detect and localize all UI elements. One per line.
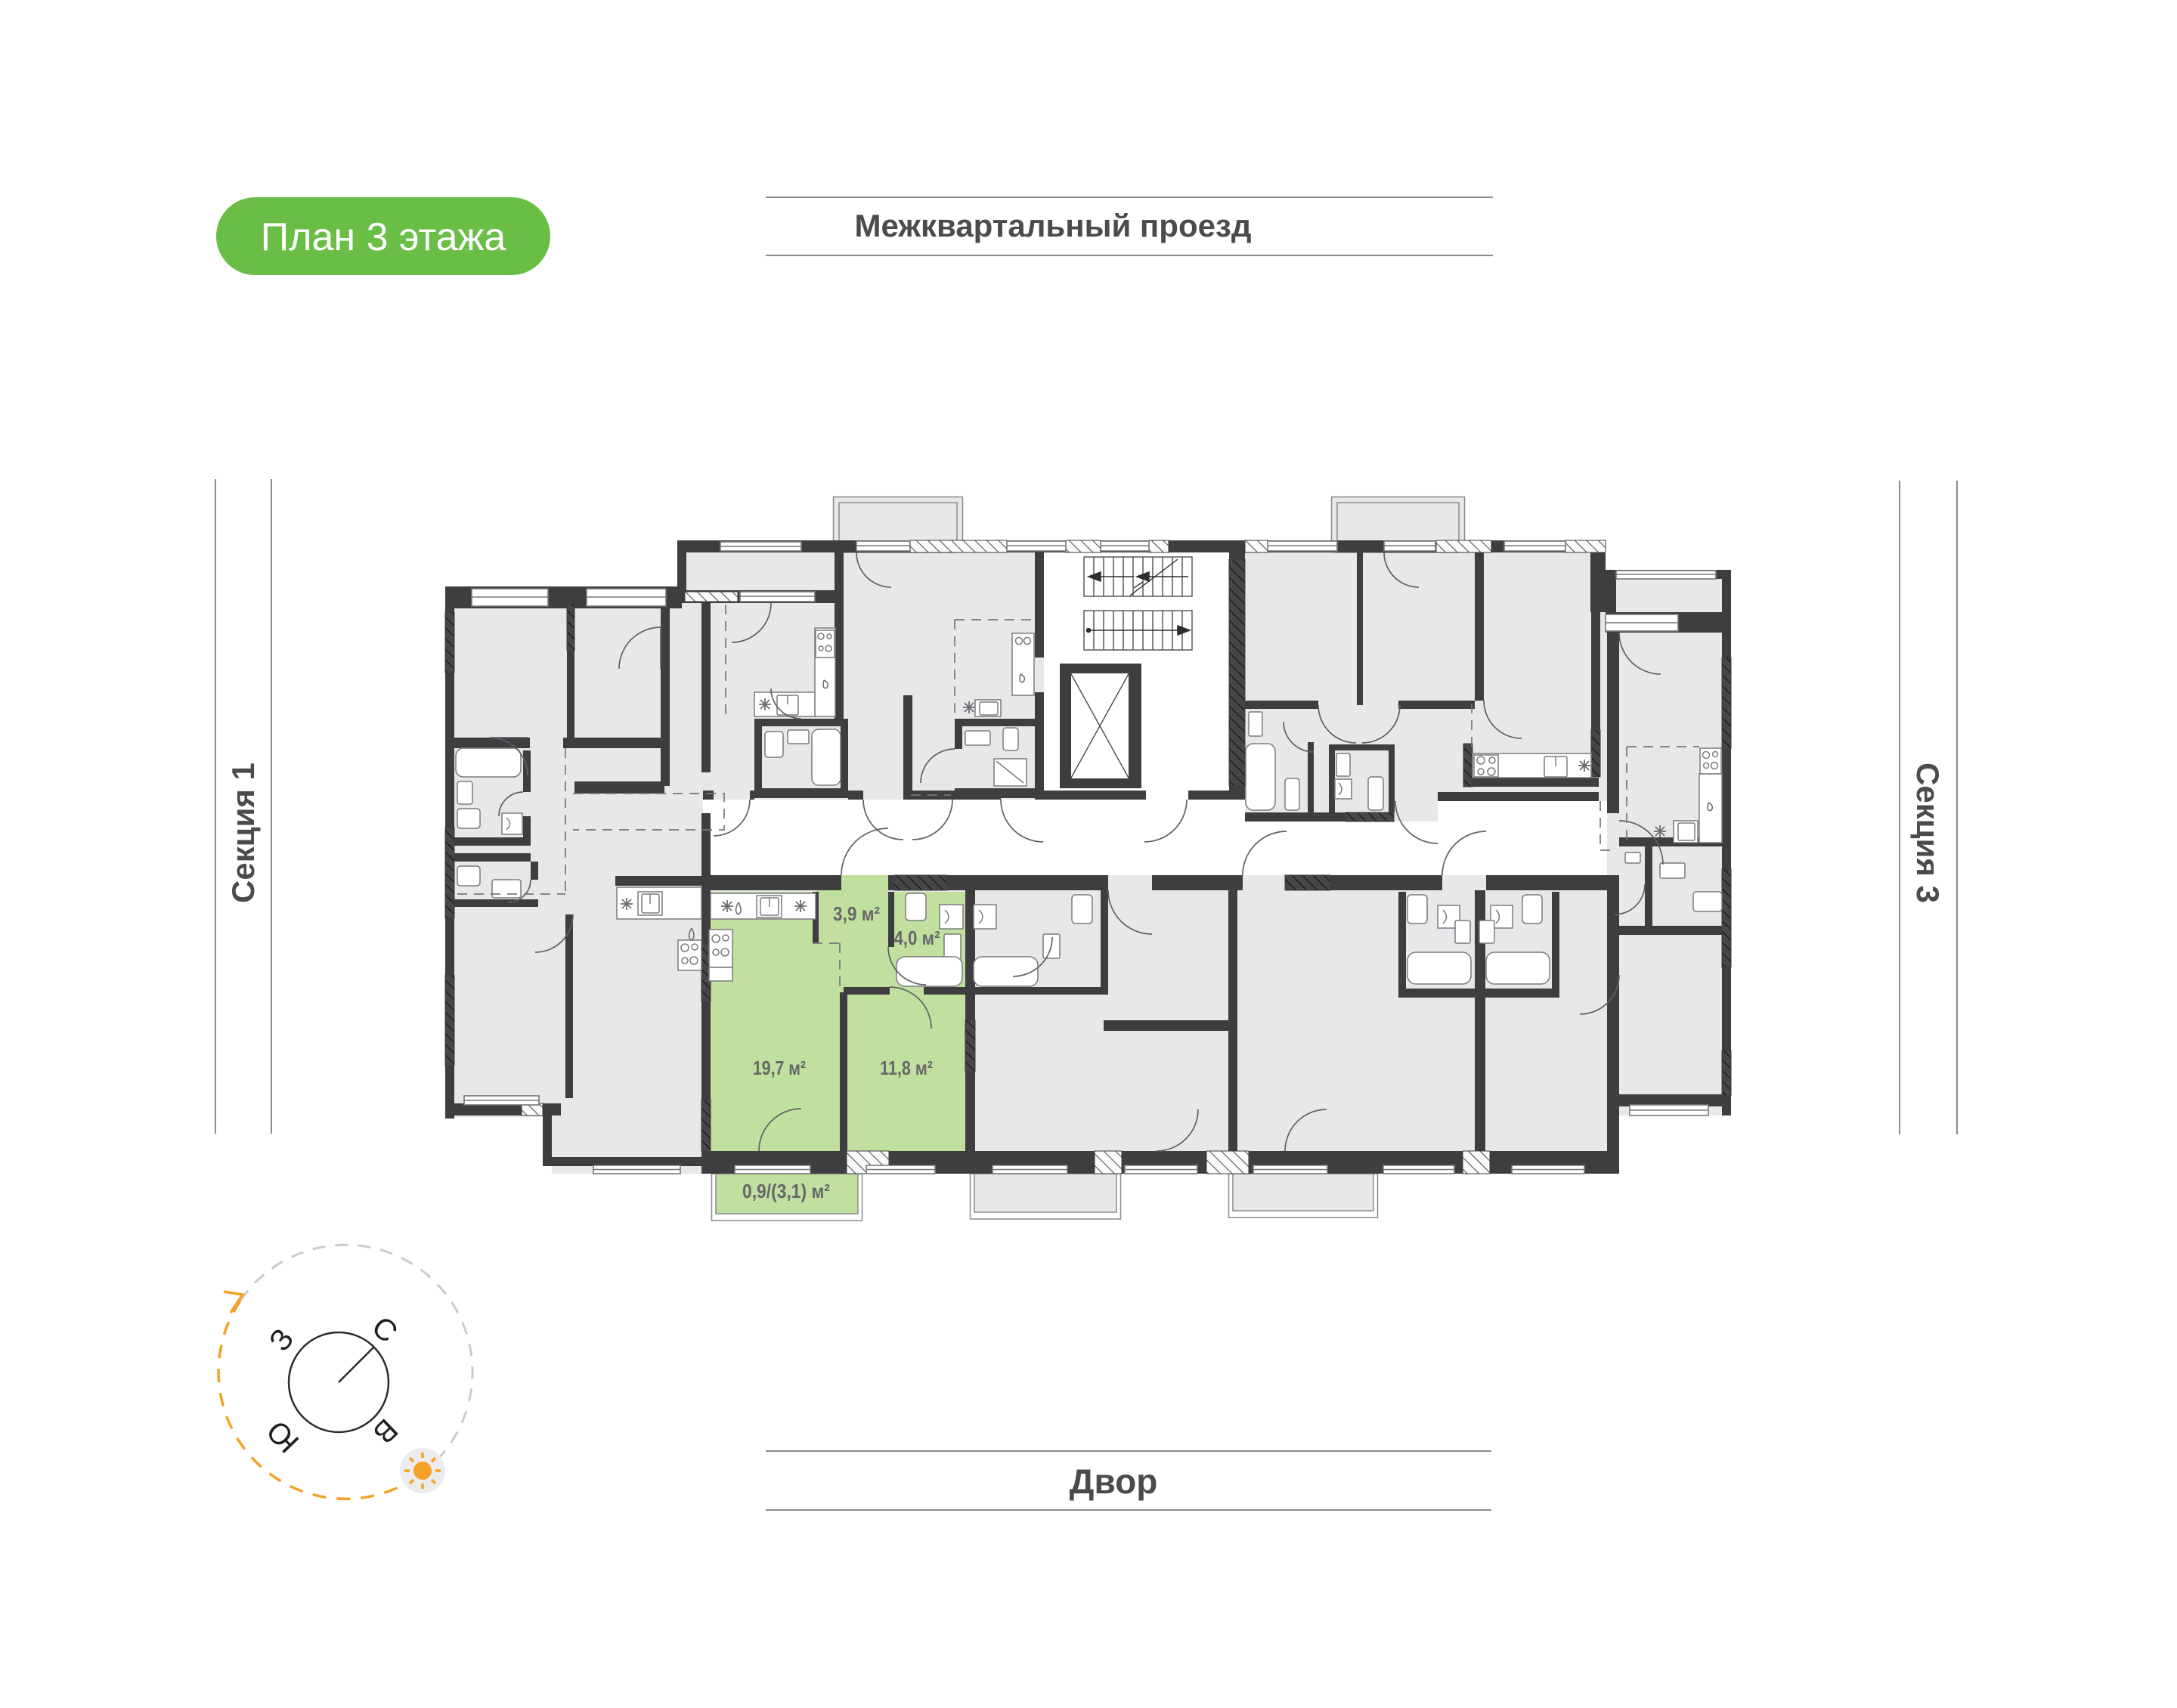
svg-text:План 3 этажа: План 3 этажа xyxy=(261,215,506,259)
svg-text:Межквартальный проезд: Межквартальный проезд xyxy=(854,208,1251,243)
svg-text:Двор: Двор xyxy=(1070,1462,1158,1501)
svg-text:11,8 м²: 11,8 м² xyxy=(880,1057,933,1079)
svg-text:19,7 м²: 19,7 м² xyxy=(753,1057,806,1079)
svg-text:4,0 м²: 4,0 м² xyxy=(894,927,940,949)
svg-text:Секция 3: Секция 3 xyxy=(1910,763,1946,903)
svg-text:3,9 м²: 3,9 м² xyxy=(833,902,880,925)
svg-text:Секция 1: Секция 1 xyxy=(225,763,261,903)
svg-text:Ю: Ю xyxy=(261,1414,306,1459)
svg-text:З: З xyxy=(263,1323,301,1357)
svg-text:0,9/(3,1) м²: 0,9/(3,1) м² xyxy=(742,1180,830,1202)
